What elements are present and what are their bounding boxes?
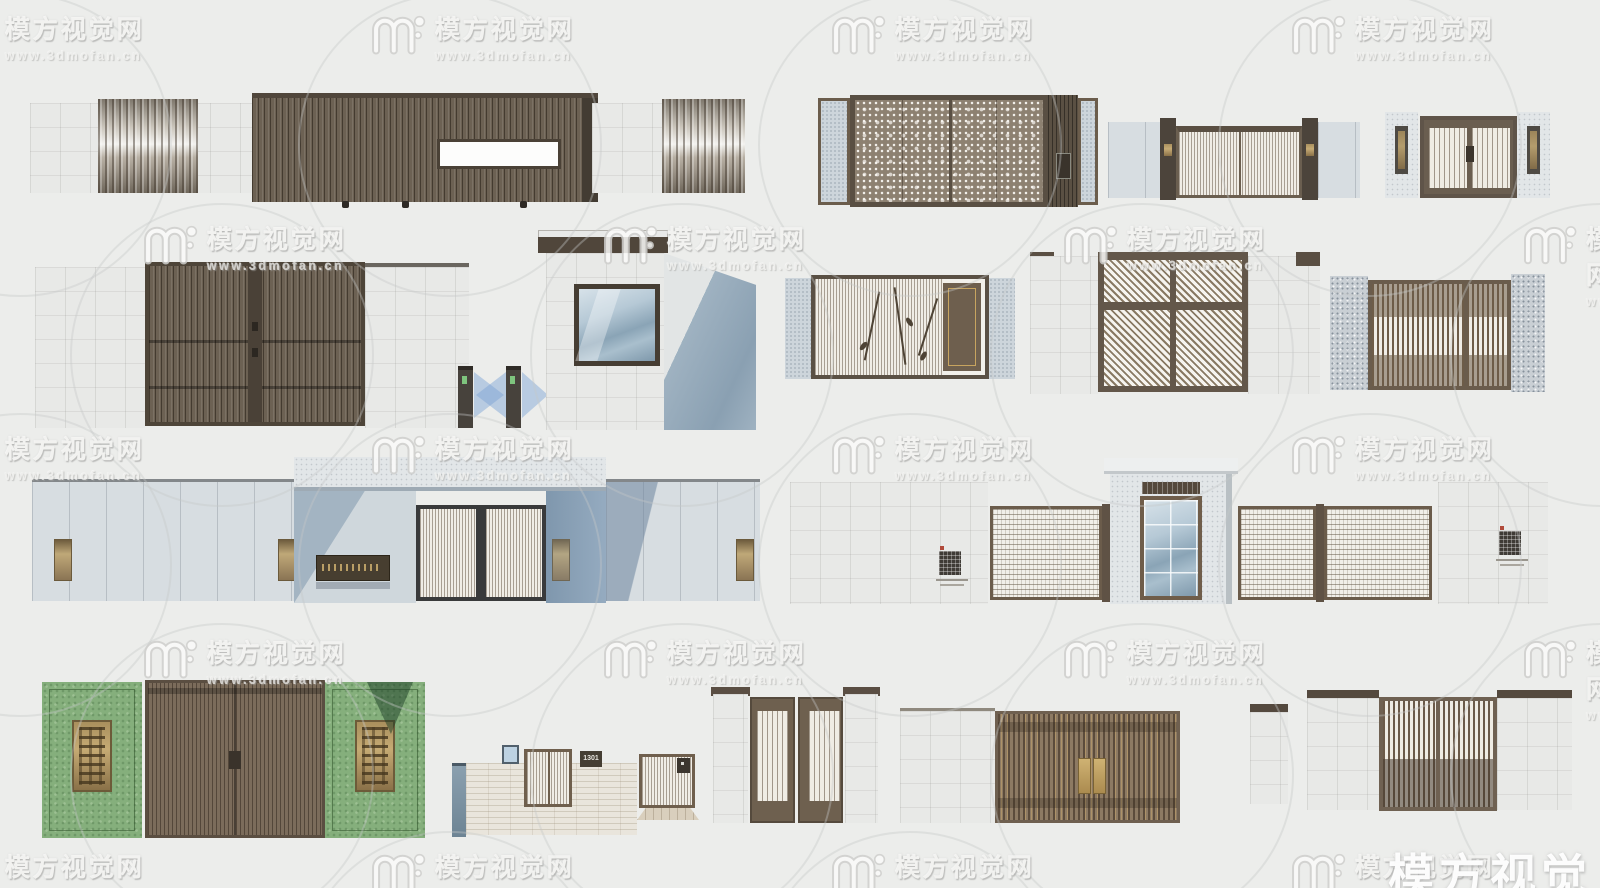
logo-text-line xyxy=(1496,559,1528,561)
branch-decor xyxy=(894,287,907,365)
mf-logo-icon xyxy=(1520,632,1577,680)
watermark-url: www.3dmofan.cn xyxy=(667,673,807,687)
watermark: 模方视觉网www.3dmofan.cn xyxy=(1060,632,1267,687)
model-canopy-entrance-wall xyxy=(30,455,762,605)
wall-segment xyxy=(1248,256,1320,394)
model-double-door-gate xyxy=(713,687,878,825)
mf-logo-icon xyxy=(828,8,886,56)
bollard-screen xyxy=(462,376,467,384)
logo-red-seal xyxy=(940,546,944,550)
branch-decor xyxy=(918,298,938,356)
mf-logo-icon xyxy=(368,846,426,888)
dark-pillar xyxy=(1048,95,1078,207)
watermark-brand: 模方视觉网 xyxy=(895,848,1035,884)
chrome-louver-panel xyxy=(98,99,198,193)
wall-segment xyxy=(900,708,995,823)
center-stiles xyxy=(476,509,486,597)
watermark-url: www.3dmofan.cn xyxy=(895,49,1035,63)
seal-medallion xyxy=(72,720,112,792)
slat-fence-gate xyxy=(995,711,1180,823)
render-canvas: 1301 xyxy=(0,0,1600,888)
logo-plaque xyxy=(932,546,972,594)
brass-plate xyxy=(1093,758,1106,794)
watermark-url: www.3dmofan.cn xyxy=(1127,673,1267,687)
mf-logo-icon xyxy=(600,632,658,680)
logo-plaque xyxy=(1492,526,1532,574)
watermark: 模方视觉网www.3dmofan.cn xyxy=(828,8,1035,63)
watermark-large: 模方视觉网 xyxy=(1388,840,1600,888)
keypad-light xyxy=(681,762,684,765)
gate-post xyxy=(1160,118,1176,200)
entrance-lattice-doors xyxy=(416,505,546,601)
wall-segment xyxy=(1307,698,1379,810)
gate-sign-slot xyxy=(437,139,561,169)
gate-lock xyxy=(1466,146,1474,162)
slat-screen xyxy=(815,279,943,375)
mf-logo-icon xyxy=(1060,632,1118,680)
stone-pillar xyxy=(785,278,811,379)
mf-logo-icon xyxy=(1520,218,1577,266)
door-leaf xyxy=(1104,310,1170,386)
wall-cap xyxy=(1296,252,1320,266)
post-plaque xyxy=(1306,144,1314,156)
watermark-brand: 模方视觉网 xyxy=(5,10,145,46)
stone-pillar xyxy=(845,694,878,823)
watermark-brand: 模方视觉网 xyxy=(1586,220,1600,292)
wall-sign-box xyxy=(502,745,519,764)
model-branch-pattern-gate xyxy=(785,275,1015,379)
model-green-patina-gate xyxy=(42,678,425,840)
center-stiles xyxy=(248,266,262,422)
lattice-gate-frame xyxy=(1098,252,1248,392)
gate-wheel xyxy=(520,201,527,208)
panel-joint xyxy=(996,100,997,202)
pillar-light-slot xyxy=(1527,126,1540,174)
door-divider xyxy=(1239,132,1241,195)
panel-joint xyxy=(902,100,903,202)
wall-sconce xyxy=(54,539,72,581)
pillar-lamp xyxy=(1530,131,1537,169)
glass-door xyxy=(1140,496,1202,600)
gate-post xyxy=(1302,118,1318,200)
wall-sconce xyxy=(736,539,754,581)
model-diagonal-lattice-gate xyxy=(1030,252,1320,394)
wall-segment xyxy=(1030,256,1098,394)
gate-doors xyxy=(145,680,325,838)
watermark-brand: 模方视觉网 xyxy=(1127,220,1267,256)
watermark: 模方视觉网www.3dmofan.cn xyxy=(600,632,807,687)
slat-gate-leaves xyxy=(1176,126,1302,198)
lamp-pillar xyxy=(1517,112,1550,198)
watermark-brand: 模方视觉网 xyxy=(435,10,575,46)
logo-text-line xyxy=(940,584,964,586)
model-louver-fence-entrance xyxy=(790,458,1548,604)
watermark-url: www.3dmofan.cn xyxy=(435,49,575,63)
plaque-shadow xyxy=(316,582,390,589)
logo-red-seal xyxy=(1500,526,1504,530)
watermark-brand: 模方视觉网 xyxy=(1586,634,1600,706)
slat-gate xyxy=(1379,697,1497,811)
model-sliding-gate-long xyxy=(30,93,745,199)
baluster-gate xyxy=(524,749,572,807)
wall-segment xyxy=(365,267,469,428)
door-divider xyxy=(548,752,550,804)
louver-fence xyxy=(1324,506,1432,600)
watermark-brand: 模方视觉网 xyxy=(207,220,347,256)
gate-doors xyxy=(1420,116,1517,198)
glass-reflection xyxy=(575,289,620,361)
slat-band-top xyxy=(1372,284,1507,317)
watermark-url: www.3dmofan.cn xyxy=(5,49,145,63)
gate-divider xyxy=(1464,284,1468,386)
wall-cap xyxy=(1250,704,1288,712)
slat-band-bottom xyxy=(1372,355,1507,386)
fence-rail xyxy=(998,798,1177,808)
seal-medallion xyxy=(355,720,395,792)
logo-glyph xyxy=(1499,531,1521,555)
model-tall-slat-gate xyxy=(35,262,469,428)
granite-pillar xyxy=(1330,276,1368,390)
plaque-text-marks xyxy=(322,564,378,571)
model-capped-wall-slat-gate xyxy=(1250,690,1572,815)
door-slat-panel xyxy=(757,711,788,801)
solid-door-panel xyxy=(943,283,981,371)
wall-cap xyxy=(1307,690,1379,698)
pillar-light-slot xyxy=(1395,126,1408,174)
door-muntins xyxy=(1144,500,1198,596)
model-wide-slat-fence-gate xyxy=(900,705,1180,825)
wall-sconce xyxy=(552,539,570,581)
hinge-knob xyxy=(252,322,258,331)
watermark-brand: 模方视觉网 xyxy=(667,634,807,670)
fence-rail xyxy=(998,722,1177,732)
booth-wing-wall xyxy=(664,253,756,430)
door-leaf xyxy=(750,697,795,823)
door-leaf xyxy=(798,697,843,823)
unit-number-plaque: 1301 xyxy=(580,751,602,767)
model-perforated-lattice-gate xyxy=(818,95,1098,207)
mf-logo-icon xyxy=(828,846,886,888)
intercom-panel xyxy=(1056,153,1071,179)
logo-glyph xyxy=(939,551,961,575)
mf-logo-icon xyxy=(1288,8,1346,56)
branch-decor xyxy=(864,292,881,361)
bollard-screen xyxy=(510,376,515,384)
granite-pillar xyxy=(1511,274,1545,392)
wall-panel xyxy=(1318,122,1360,198)
transom-panel xyxy=(1104,260,1170,302)
louver-fence xyxy=(1238,506,1316,600)
mf-logo-icon xyxy=(140,632,198,680)
door-slat-panel xyxy=(809,711,840,801)
slat-gate-doors xyxy=(145,262,365,426)
door-slat-panel xyxy=(1429,128,1467,188)
watermark-url: www.3dmofan.cn xyxy=(1586,709,1600,723)
hinge-knob xyxy=(252,348,258,357)
watermark: 模方视觉网www.3dmofan.cn xyxy=(828,846,1035,888)
keypad-box xyxy=(677,758,690,773)
post-plaque xyxy=(1164,144,1172,156)
green-pillar xyxy=(42,682,142,838)
wall-segment xyxy=(1497,698,1572,810)
brass-plate xyxy=(1078,758,1091,794)
stone-pillar xyxy=(713,694,748,823)
model-courtyard-wall-small-gate: 1301 xyxy=(452,745,637,838)
stone-pillar xyxy=(818,98,850,205)
watermark-circle xyxy=(758,831,1062,888)
sliding-gate-leaf xyxy=(252,93,598,202)
booth-roof xyxy=(538,237,668,253)
wall-segment xyxy=(35,267,145,428)
model-pedestrian-gate xyxy=(637,752,699,820)
bollard-post xyxy=(458,366,473,428)
watermark: 模方视觉网www.3dmofan.cn xyxy=(0,846,145,888)
louver-fence xyxy=(990,506,1102,600)
lamp-pillar xyxy=(1385,112,1418,198)
watermark: 模方视觉网www.3dmofan.cn xyxy=(368,846,575,888)
model-swing-gate-lamp-pillars xyxy=(1385,112,1550,198)
watermark-brand: 模方视觉网 xyxy=(895,10,1035,46)
mf-logo-icon xyxy=(368,8,426,56)
logo-text-line xyxy=(1500,564,1524,566)
watermark-brand: 模方视觉网 xyxy=(1127,634,1267,670)
gate-wheel xyxy=(342,201,349,208)
fence-post xyxy=(1102,504,1110,602)
booth-canopy xyxy=(1104,458,1238,474)
model-access-bollards xyxy=(458,366,533,428)
wall-pillar xyxy=(1250,712,1288,804)
mf-logo-icon xyxy=(140,218,198,266)
transom-panel xyxy=(1176,260,1242,302)
watermark: 模方视觉网www.3dmofan.cn xyxy=(368,8,575,63)
door-leaf xyxy=(1176,310,1242,386)
stone-pillar xyxy=(1078,98,1098,205)
model-guard-booth xyxy=(538,230,756,430)
gate-frame xyxy=(811,275,989,379)
pillar-lamp xyxy=(1398,131,1405,169)
bollard-post xyxy=(506,366,521,428)
watermark-brand: 模方视觉网 xyxy=(207,634,347,670)
wall-panel xyxy=(1108,122,1160,198)
fence-post xyxy=(1316,504,1324,602)
watermark: 模方视觉网www.3dmofan.cn xyxy=(1288,8,1495,63)
seal-pattern xyxy=(79,727,105,785)
stone-pillar xyxy=(989,278,1015,379)
chrome-louver-panel xyxy=(662,99,745,193)
leaf-decor xyxy=(905,316,915,327)
lattice-doors xyxy=(850,95,1048,207)
watermark: 模方视觉网www.3dmofan.cn xyxy=(0,8,145,63)
door-divider xyxy=(949,100,952,202)
blue-end-post xyxy=(452,763,466,837)
gate-divider xyxy=(1436,701,1440,807)
watermark-brand: 模方视觉网 xyxy=(5,848,145,884)
door-slat-panel xyxy=(1472,128,1510,188)
green-pillar xyxy=(325,682,425,838)
door-inlay-border xyxy=(948,288,976,366)
booth-window xyxy=(574,284,660,366)
watermark-brand: 模方视觉网 xyxy=(1355,10,1495,46)
wall-segment xyxy=(592,103,662,193)
seal-pattern xyxy=(362,727,388,785)
gate-wheel xyxy=(402,201,409,208)
booth-vent-lintel xyxy=(1142,482,1200,494)
wall-cap xyxy=(1497,690,1572,698)
logo-text-line xyxy=(936,579,968,581)
gate-lock xyxy=(229,751,241,769)
entrance-canopy xyxy=(294,457,606,491)
watermark-url: www.3dmofan.cn xyxy=(1355,49,1495,63)
watermark-url: www.3dmofan.cn xyxy=(1586,295,1600,309)
slat-gate xyxy=(1368,280,1511,390)
watermark-brand: 模方视觉网 xyxy=(435,848,575,884)
mf-logo-icon xyxy=(1288,846,1346,888)
paving-path xyxy=(637,808,699,820)
entrance-plaque xyxy=(316,555,390,581)
model-low-slat-gate xyxy=(1108,118,1360,200)
model-two-tone-slat-gate xyxy=(1330,274,1545,392)
